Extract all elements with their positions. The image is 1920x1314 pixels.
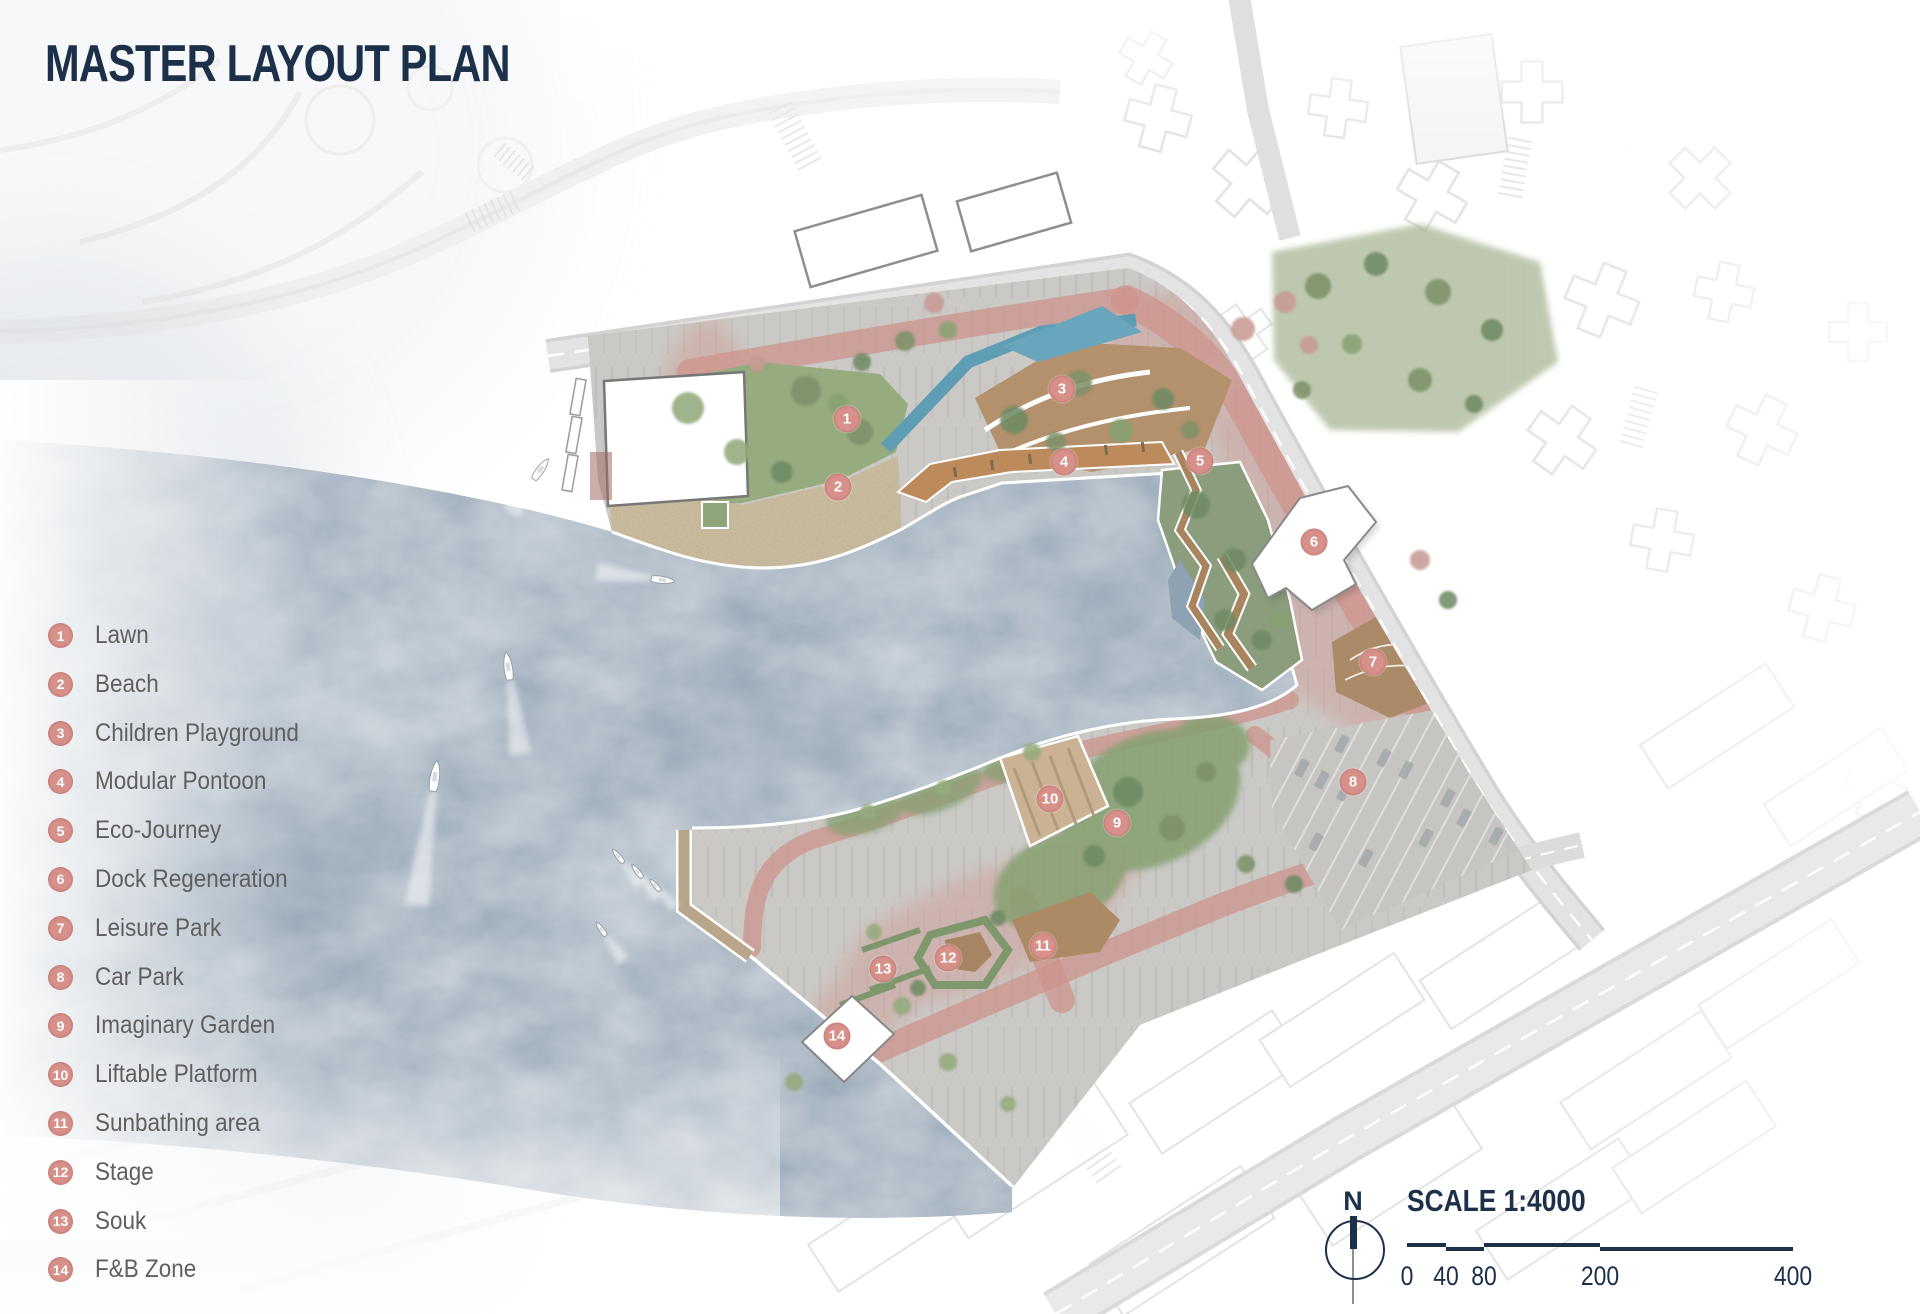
- map-marker-number: 14: [829, 1027, 846, 1044]
- map-marker: 11: [1029, 932, 1056, 959]
- map-marker-number: 8: [1349, 773, 1357, 790]
- scale-bar-segment: [1407, 1243, 1446, 1247]
- map-marker: 13: [870, 955, 897, 982]
- scale-label: SCALE 1:4000: [1407, 1183, 1586, 1219]
- map-marker: 14: [823, 1022, 850, 1049]
- map-marker-number: 4: [1060, 454, 1068, 471]
- map-markers: 1 2 3 4 5 6 7 8 9 10: [0, 0, 1920, 1314]
- map-marker: 4: [1051, 449, 1078, 476]
- scale-bar: SCALE 1:4000 04080200400: [1407, 1177, 1793, 1307]
- master-plan-page: MASTER LAYOUT PLAN 1 Lawn 2 Beach 3 Chil…: [0, 0, 1920, 1314]
- map-marker: 2: [825, 473, 852, 500]
- map-marker-number: 1: [843, 411, 851, 428]
- map-marker: 8: [1340, 768, 1367, 795]
- map-marker-number: 10: [1042, 791, 1059, 808]
- map-marker: 6: [1301, 529, 1328, 556]
- scale-bar-segment: [1446, 1247, 1485, 1251]
- north-label: N: [1322, 1186, 1384, 1217]
- scale-tick-label: 400: [1774, 1261, 1812, 1292]
- map-marker: 12: [935, 945, 962, 972]
- map-marker: 7: [1359, 648, 1386, 675]
- map-marker-number: 9: [1113, 814, 1121, 831]
- map-marker-number: 6: [1310, 534, 1318, 551]
- scale-bar-ticks: 04080200400: [1407, 1261, 1793, 1295]
- compass-needle-north: [1350, 1216, 1357, 1249]
- map-marker: 9: [1104, 809, 1131, 836]
- map-marker: 10: [1037, 786, 1064, 813]
- map-marker-number: 2: [834, 478, 842, 495]
- map-marker-number: 13: [875, 960, 892, 977]
- map-marker-number: 11: [1035, 937, 1051, 954]
- scale-tick-label: 40: [1433, 1261, 1459, 1292]
- map-marker-number: 12: [940, 950, 957, 967]
- north-arrow: N: [1322, 1186, 1384, 1314]
- map-marker: 5: [1187, 447, 1214, 474]
- map-marker-number: 7: [1369, 653, 1377, 670]
- scale-tick-label: 200: [1581, 1261, 1619, 1292]
- map-marker: 3: [1048, 375, 1075, 402]
- map-marker-number: 5: [1196, 452, 1204, 469]
- map-marker-number: 3: [1058, 380, 1066, 397]
- map-marker: 1: [833, 406, 860, 433]
- scale-bar-segments: [1407, 1243, 1793, 1251]
- scale-bar-segment: [1600, 1247, 1793, 1251]
- scale-bar-segment: [1484, 1243, 1600, 1247]
- scale-tick-label: 80: [1471, 1261, 1497, 1292]
- scale-tick-label: 0: [1401, 1261, 1414, 1292]
